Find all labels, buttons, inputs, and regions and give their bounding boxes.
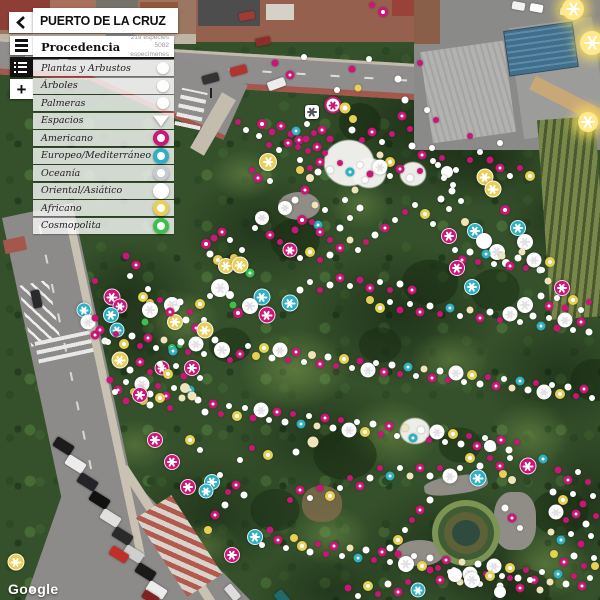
plant-marker[interactable] (496, 462, 505, 471)
plant-marker[interactable] (273, 408, 282, 417)
plant-marker[interactable] (539, 267, 545, 273)
plant-marker[interactable] (316, 228, 325, 237)
plant-marker[interactable] (429, 145, 435, 151)
plant-marker[interactable] (237, 457, 243, 463)
plant-marker[interactable] (274, 536, 283, 545)
plant-marker[interactable] (266, 142, 272, 148)
plant-marker[interactable] (259, 307, 276, 324)
plant-marker[interactable] (485, 374, 491, 380)
plant-marker[interactable] (266, 231, 275, 240)
plant-marker[interactable] (435, 162, 441, 168)
plant-marker[interactable] (516, 377, 525, 386)
plant-marker[interactable] (359, 137, 365, 143)
plant-marker[interactable] (502, 505, 509, 512)
plant-marker[interactable] (517, 525, 523, 531)
plant-marker[interactable] (283, 545, 289, 551)
plant-marker[interactable] (537, 587, 544, 594)
plant-marker[interactable] (560, 558, 569, 567)
plant-marker[interactable] (408, 286, 417, 295)
plant-marker[interactable] (402, 527, 408, 533)
plant-marker[interactable] (256, 133, 262, 139)
plant-marker[interactable] (283, 243, 298, 258)
plant-marker[interactable] (407, 175, 414, 182)
plant-marker[interactable] (199, 484, 214, 499)
plant-marker[interactable] (461, 218, 469, 226)
plant-marker[interactable] (232, 257, 249, 274)
plant-marker[interactable] (119, 339, 129, 349)
plant-marker[interactable] (373, 360, 379, 366)
plant-marker[interactable] (325, 354, 332, 361)
plant-marker[interactable] (123, 379, 129, 385)
plant-marker[interactable] (225, 489, 231, 495)
plant-marker[interactable] (112, 389, 118, 395)
plant-marker[interactable] (245, 343, 251, 349)
plant-marker[interactable] (307, 165, 313, 171)
plant-marker[interactable] (465, 453, 475, 463)
plant-marker[interactable] (340, 103, 351, 114)
plant-marker[interactable] (494, 586, 506, 598)
plant-marker[interactable] (397, 281, 404, 288)
plant-marker[interactable] (530, 313, 537, 320)
plant-marker[interactable] (327, 282, 334, 289)
plant-marker[interactable] (507, 455, 513, 461)
plant-marker[interactable] (123, 398, 130, 405)
plant-marker[interactable] (568, 531, 574, 537)
plant-marker[interactable] (487, 455, 493, 461)
plant-marker[interactable] (345, 585, 352, 592)
plant-marker[interactable] (153, 345, 159, 351)
plant-marker[interactable] (427, 473, 434, 480)
plant-marker[interactable] (549, 382, 555, 388)
plant-marker[interactable] (517, 234, 533, 250)
plant-marker[interactable] (232, 411, 242, 421)
plant-marker[interactable] (467, 249, 474, 256)
plant-marker[interactable] (355, 85, 362, 92)
menu-button[interactable] (10, 36, 33, 55)
plant-marker[interactable] (485, 181, 502, 198)
plant-marker[interactable] (337, 225, 344, 232)
plant-marker[interactable] (178, 339, 185, 346)
plant-marker[interactable] (497, 317, 503, 323)
plant-marker[interactable] (517, 297, 533, 313)
plant-marker[interactable] (357, 162, 363, 168)
plant-marker[interactable] (105, 339, 111, 345)
plant-marker[interactable] (368, 128, 377, 137)
plant-marker[interactable] (377, 152, 384, 159)
plant-marker[interactable] (255, 211, 269, 225)
plant-marker[interactable] (318, 126, 327, 135)
plant-marker[interactable] (450, 182, 456, 188)
plant-marker[interactable] (448, 568, 462, 582)
plant-marker[interactable] (296, 486, 305, 495)
plant-marker[interactable] (539, 455, 548, 464)
plant-marker[interactable] (197, 322, 214, 339)
plant-marker[interactable] (292, 227, 299, 234)
plant-marker[interactable] (525, 387, 532, 394)
plant-marker[interactable] (385, 422, 394, 431)
plant-marker[interactable] (164, 454, 180, 470)
plant-marker[interactable] (297, 287, 304, 294)
plant-marker[interactable] (580, 385, 589, 394)
plant-marker[interactable] (449, 188, 456, 195)
plant-marker[interactable] (129, 333, 136, 340)
plant-marker[interactable] (179, 395, 186, 402)
plant-marker[interactable] (315, 169, 322, 176)
plant-marker[interactable] (565, 384, 572, 391)
category-row-palmeras[interactable]: Palmeras (33, 95, 174, 111)
plant-marker[interactable] (580, 501, 587, 508)
plant-marker[interactable] (578, 112, 598, 132)
plant-marker[interactable] (533, 380, 539, 386)
plant-marker[interactable] (427, 555, 434, 562)
plant-marker[interactable] (254, 174, 263, 183)
plant-marker[interactable] (259, 542, 265, 548)
plant-marker[interactable] (458, 441, 465, 448)
plant-marker[interactable] (442, 439, 448, 445)
plant-marker[interactable] (366, 56, 372, 62)
plant-marker[interactable] (386, 472, 395, 481)
plant-marker[interactable] (387, 545, 394, 552)
plant-marker[interactable] (548, 529, 555, 536)
plant-marker[interactable] (169, 347, 178, 356)
plant-marker[interactable] (539, 569, 545, 575)
plant-marker[interactable] (113, 331, 119, 337)
plant-marker[interactable] (477, 463, 484, 470)
plant-marker[interactable] (304, 121, 310, 127)
plant-marker[interactable] (508, 514, 517, 523)
plant-marker[interactable] (515, 575, 522, 582)
plant-marker[interactable] (515, 255, 522, 262)
plant-marker[interactable] (285, 357, 291, 363)
plant-marker[interactable] (347, 237, 354, 244)
plant-marker[interactable] (347, 215, 353, 221)
plant-marker[interactable] (394, 433, 400, 439)
plant-marker[interactable] (297, 255, 303, 261)
plant-marker[interactable] (464, 279, 480, 295)
plant-marker[interactable] (457, 313, 463, 319)
plant-marker[interactable] (550, 489, 557, 496)
plant-marker[interactable] (441, 175, 447, 181)
plant-marker[interactable] (396, 165, 405, 174)
origin-row-cosmopolita[interactable]: Cosmopolita (33, 218, 174, 234)
plant-marker[interactable] (375, 591, 381, 597)
plant-marker[interactable] (132, 387, 148, 403)
plant-marker[interactable] (157, 297, 163, 303)
plant-marker[interactable] (157, 361, 163, 367)
plant-marker[interactable] (314, 423, 321, 430)
plant-marker[interactable] (263, 450, 273, 460)
origin-row-oce[interactable]: Oceanía (33, 165, 174, 181)
plant-marker[interactable] (392, 217, 398, 223)
plant-marker[interactable] (322, 207, 328, 213)
plant-marker[interactable] (267, 527, 274, 534)
plant-marker[interactable] (389, 131, 395, 137)
plant-marker[interactable] (407, 301, 413, 307)
plant-marker[interactable] (187, 309, 193, 315)
plant-marker[interactable] (293, 449, 300, 456)
plant-marker[interactable] (273, 343, 288, 358)
plant-marker[interactable] (562, 305, 569, 312)
plant-marker[interactable] (227, 357, 233, 363)
plant-marker[interactable] (173, 363, 179, 369)
plant-marker[interactable] (284, 139, 293, 148)
plant-marker[interactable] (303, 136, 310, 143)
plant-marker[interactable] (402, 425, 409, 432)
plant-marker[interactable] (295, 144, 301, 150)
plant-marker[interactable] (207, 251, 214, 258)
plant-marker[interactable] (330, 425, 337, 432)
plant-marker[interactable] (363, 239, 369, 245)
plant-marker[interactable] (452, 247, 458, 253)
plant-marker[interactable] (339, 354, 349, 364)
plant-marker[interactable] (467, 157, 473, 163)
plant-marker[interactable] (136, 358, 145, 367)
plant-marker[interactable] (438, 196, 445, 203)
plant-marker[interactable] (570, 327, 576, 333)
plant-marker[interactable] (286, 71, 295, 80)
plant-marker[interactable] (313, 143, 322, 152)
plant-marker[interactable] (427, 567, 434, 574)
plant-marker[interactable] (427, 303, 434, 310)
plant-marker[interactable] (398, 112, 407, 121)
plant-marker[interactable] (235, 119, 241, 125)
plant-marker[interactable] (418, 427, 425, 434)
plant-marker[interactable] (355, 593, 361, 599)
category-row-espacios[interactable]: Espacios (33, 113, 174, 129)
plant-marker[interactable] (571, 573, 577, 579)
plant-marker[interactable] (201, 239, 211, 249)
plant-marker[interactable] (487, 157, 494, 164)
plant-marker[interactable] (142, 302, 158, 318)
plant-marker[interactable] (333, 363, 339, 369)
plant-marker[interactable] (242, 405, 248, 411)
plant-marker[interactable] (195, 299, 205, 309)
plant-marker[interactable] (514, 439, 520, 445)
plant-marker[interactable] (352, 187, 359, 194)
plant-marker[interactable] (411, 553, 417, 559)
plant-marker[interactable] (449, 260, 465, 276)
plant-marker[interactable] (545, 302, 554, 311)
plant-marker[interactable] (564, 476, 573, 485)
plant-marker[interactable] (562, 0, 584, 20)
plant-marker[interactable] (307, 495, 313, 501)
plant-marker[interactable] (573, 393, 579, 399)
plant-marker[interactable] (590, 493, 596, 499)
plant-marker[interactable] (349, 66, 356, 73)
plant-marker[interactable] (137, 343, 143, 349)
plant-marker[interactable] (379, 139, 385, 145)
plant-marker[interactable] (585, 479, 591, 485)
plant-marker[interactable] (509, 385, 516, 392)
plant-marker[interactable] (166, 308, 175, 317)
plant-marker[interactable] (507, 173, 513, 179)
plant-marker[interactable] (507, 575, 513, 581)
plant-marker[interactable] (307, 549, 314, 556)
plant-marker[interactable] (252, 225, 258, 231)
plant-marker[interactable] (459, 559, 466, 566)
plant-marker[interactable] (377, 279, 383, 285)
plant-marker[interactable] (309, 219, 315, 225)
plant-marker[interactable] (327, 167, 334, 174)
plant-marker[interactable] (433, 117, 439, 123)
plant-marker[interactable] (499, 253, 506, 260)
plant-marker[interactable] (180, 479, 196, 495)
plant-marker[interactable] (525, 171, 535, 181)
plant-marker[interactable] (473, 442, 482, 451)
plant-marker[interactable] (437, 465, 443, 471)
plant-marker[interactable] (402, 209, 408, 215)
plant-marker[interactable] (583, 521, 590, 528)
plant-marker[interactable] (563, 581, 570, 588)
plant-marker[interactable] (330, 542, 339, 551)
plant-marker[interactable] (155, 383, 161, 389)
plant-marker[interactable] (360, 427, 370, 437)
plant-marker[interactable] (243, 127, 249, 133)
plant-marker[interactable] (581, 563, 587, 569)
plant-marker[interactable] (578, 541, 585, 548)
plant-marker[interactable] (292, 348, 301, 357)
plant-marker[interactable] (404, 363, 413, 372)
plant-marker[interactable] (354, 419, 360, 425)
plant-marker[interactable] (218, 411, 224, 417)
plant-marker[interactable] (316, 158, 325, 167)
plant-marker[interactable] (282, 419, 289, 426)
plant-marker[interactable] (491, 261, 497, 267)
plant-marker[interactable] (338, 417, 344, 423)
plant-marker[interactable] (184, 360, 200, 376)
plant-marker[interactable] (301, 54, 307, 60)
plant-marker[interactable] (347, 545, 354, 552)
plant-marker[interactable] (147, 369, 153, 375)
plant-marker[interactable] (487, 309, 494, 316)
plant-marker[interactable] (305, 247, 315, 257)
plant-marker[interactable] (503, 307, 518, 322)
plant-marker[interactable] (389, 362, 396, 369)
plant-marker[interactable] (272, 60, 279, 67)
plant-marker[interactable] (217, 472, 223, 478)
plant-marker[interactable] (437, 368, 444, 375)
plant-marker[interactable] (305, 148, 311, 154)
plant-marker[interactable] (380, 368, 389, 377)
plant-marker[interactable] (147, 432, 163, 448)
plant-marker[interactable] (296, 166, 304, 174)
plant-marker[interactable] (554, 295, 560, 301)
plant-marker[interactable] (249, 167, 255, 173)
plant-marker[interactable] (506, 262, 515, 271)
plant-marker[interactable] (252, 352, 260, 360)
plant-marker[interactable] (499, 470, 507, 478)
plant-marker[interactable] (290, 534, 298, 542)
plant-marker[interactable] (550, 550, 558, 558)
plant-marker[interactable] (287, 497, 293, 503)
plant-marker[interactable] (96, 326, 105, 335)
plant-marker[interactable] (580, 31, 600, 55)
plant-marker[interactable] (342, 197, 348, 203)
plant-marker[interactable] (430, 425, 445, 440)
plant-marker[interactable] (549, 505, 564, 520)
plant-marker[interactable] (132, 261, 141, 270)
plant-marker[interactable] (416, 506, 425, 515)
plant-marker[interactable] (239, 247, 245, 253)
plant-marker[interactable] (588, 533, 594, 539)
plant-marker[interactable] (312, 202, 319, 209)
plant-marker[interactable] (426, 437, 432, 443)
plant-marker[interactable] (517, 165, 523, 171)
plant-marker[interactable] (413, 373, 419, 379)
plant-marker[interactable] (417, 561, 427, 571)
plant-marker[interactable] (437, 311, 443, 317)
plant-marker[interactable] (461, 379, 467, 385)
plant-marker[interactable] (167, 405, 173, 411)
plant-marker[interactable] (476, 314, 485, 323)
plant-marker[interactable] (591, 562, 599, 570)
plant-marker[interactable] (586, 329, 593, 336)
plant-marker[interactable] (367, 475, 374, 482)
plant-marker[interactable] (416, 464, 425, 473)
plant-marker[interactable] (417, 60, 423, 66)
plant-marker[interactable] (428, 374, 437, 383)
plant-marker[interactable] (356, 482, 365, 491)
plant-marker[interactable] (327, 252, 334, 259)
plant-marker[interactable] (211, 235, 218, 242)
plant-marker[interactable] (297, 420, 306, 429)
plant-marker[interactable] (337, 485, 343, 491)
plant-marker[interactable] (416, 308, 425, 317)
plant-marker[interactable] (446, 304, 455, 313)
plant-marker[interactable] (297, 541, 307, 551)
plant-marker[interactable] (357, 277, 364, 284)
plant-marker[interactable] (306, 174, 314, 182)
plant-marker[interactable] (211, 511, 220, 520)
plant-marker[interactable] (226, 291, 234, 299)
plant-marker[interactable] (347, 475, 353, 481)
plant-marker[interactable] (570, 491, 576, 497)
plant-marker[interactable] (317, 287, 323, 293)
plant-marker[interactable] (308, 351, 316, 359)
plant-marker[interactable] (145, 286, 151, 292)
plant-marker[interactable] (442, 556, 451, 565)
plant-marker[interactable] (204, 526, 212, 534)
plant-marker[interactable] (499, 573, 505, 579)
plant-marker[interactable] (183, 317, 190, 324)
plant-marker[interactable] (370, 421, 377, 428)
plant-marker[interactable] (323, 551, 329, 557)
plant-marker[interactable] (589, 395, 595, 401)
plant-marker[interactable] (449, 366, 464, 381)
plant-marker[interactable] (305, 105, 319, 119)
plant-marker[interactable] (427, 497, 434, 504)
origin-row-americano[interactable]: Americano (33, 130, 174, 146)
plant-marker[interactable] (477, 149, 483, 155)
list-button-active[interactable] (10, 57, 33, 77)
plant-marker[interactable] (575, 469, 581, 475)
plant-marker[interactable] (163, 369, 173, 379)
plant-marker[interactable] (547, 579, 554, 586)
plant-marker[interactable] (8, 554, 25, 571)
plant-marker[interactable] (227, 237, 233, 243)
plant-marker[interactable] (470, 470, 487, 487)
plant-marker[interactable] (214, 342, 230, 358)
plant-marker[interactable] (446, 206, 452, 212)
plant-marker[interactable] (269, 129, 276, 136)
plant-marker[interactable] (301, 359, 307, 365)
plant-marker[interactable] (453, 167, 459, 173)
plant-marker[interactable] (558, 313, 573, 328)
plant-marker[interactable] (363, 547, 370, 554)
plant-marker[interactable] (458, 198, 464, 204)
plant-marker[interactable] (467, 370, 477, 380)
plant-marker[interactable] (464, 572, 480, 588)
